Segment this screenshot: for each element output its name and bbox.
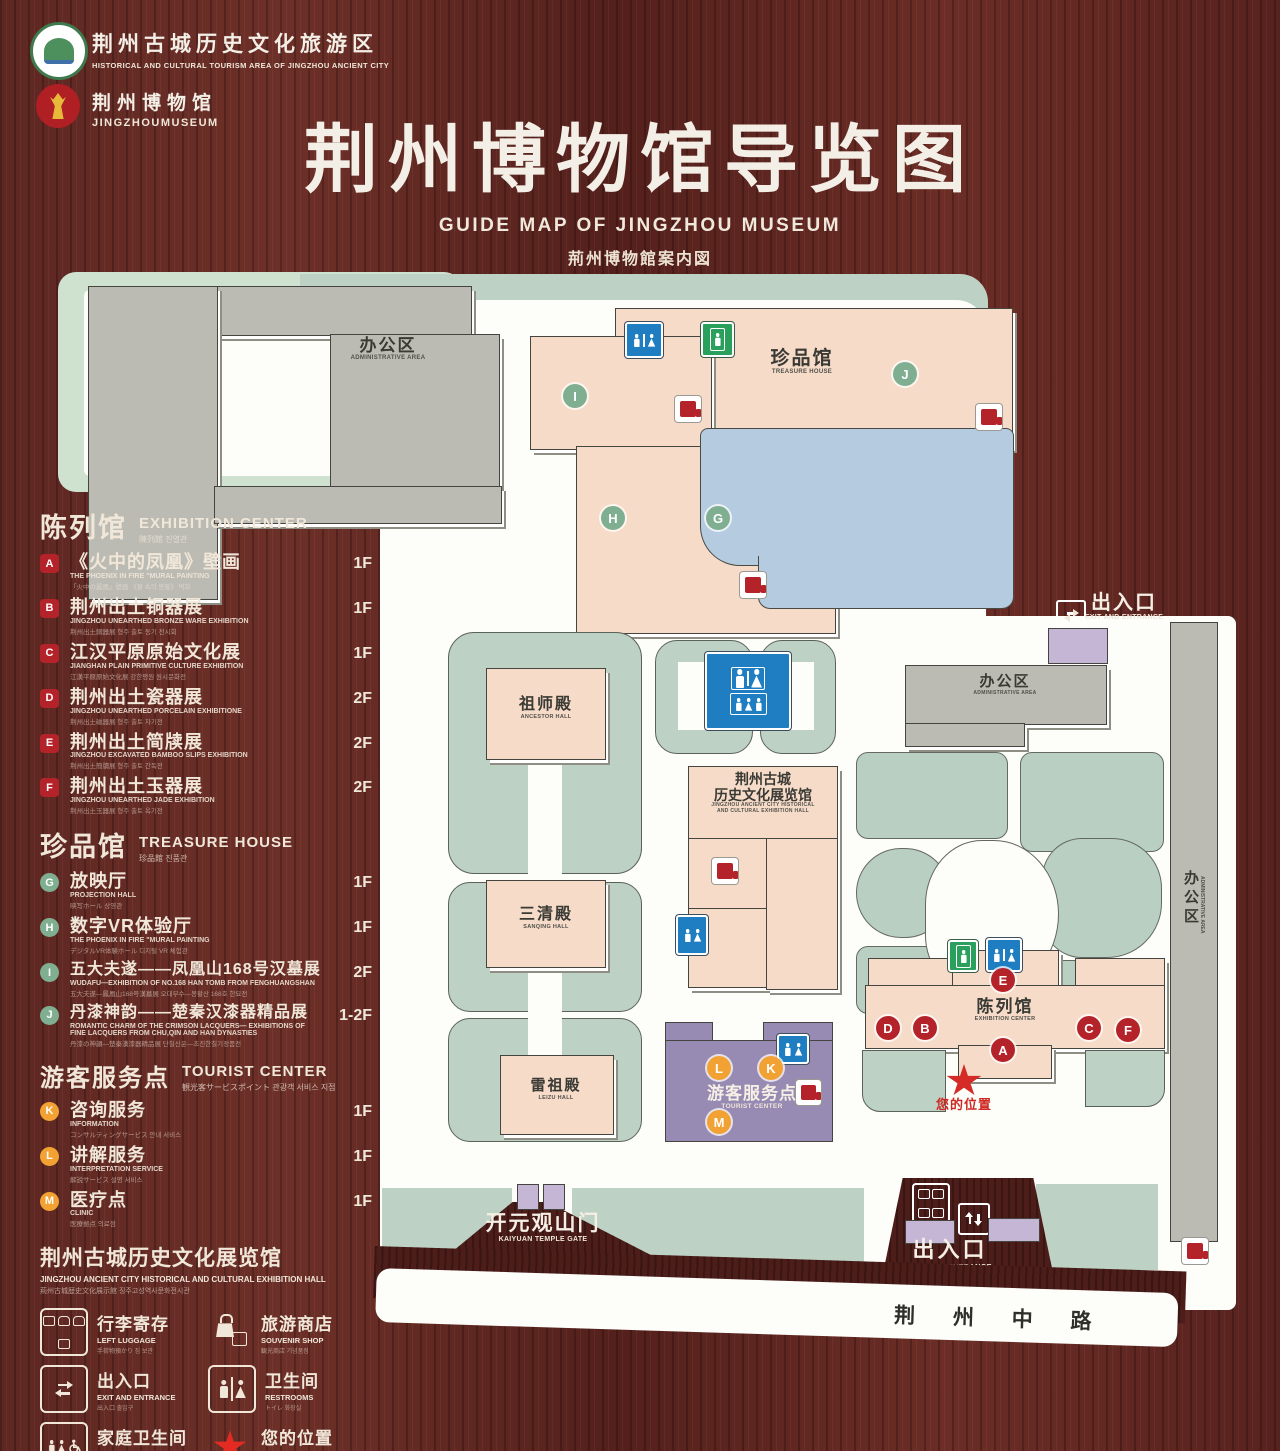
legend-restrooms: 卫生间RESTROOMSトイレ 화장실 [208, 1365, 372, 1413]
accessible-elevator-icon-tourist [796, 1080, 821, 1105]
admin-area-building-right-step[interactable] [905, 723, 1025, 747]
logo1-zh: 荆州古城历史文化旅游区 [92, 28, 389, 58]
badge-I: I [40, 963, 59, 982]
tourism-area-logo-text: 荆州古城历史文化旅游区 HISTORICAL AND CULTURAL TOUR… [92, 28, 389, 70]
title-en: GUIDE MAP OF JINGZHOU MUSEUM [304, 215, 976, 237]
map-marker-B[interactable]: B [913, 1016, 937, 1040]
left-luggage-icon [40, 1308, 88, 1356]
accessible-elevator-icon-jzhall [712, 858, 738, 884]
your-location-icon [208, 1424, 252, 1451]
badge-M: M [40, 1192, 59, 1211]
garden-patch [856, 752, 1008, 839]
pond-lower [758, 556, 1014, 609]
legend-exit-entrance: 出入口EXIT AND ENTRANCE出入口 출입구 [40, 1365, 208, 1413]
badge-D: D [40, 689, 59, 708]
legend-hall-note: 荆州古城历史文化展览馆 JINGZHOU ANCIENT CITY HISTOR… [40, 1242, 372, 1296]
badge-L: L [40, 1147, 59, 1166]
legend-section-tourist-header: 游客服务点 TOURIST CENTER 観光客サービスポイント 관광객 서비스… [40, 1058, 372, 1093]
map-marker-I[interactable]: I [563, 384, 587, 408]
leizu-hall-label: 雷祖殿 LEIZU HALL [530, 1078, 581, 1101]
tourism-area-logo [30, 22, 88, 80]
legend-item-A[interactable]: A 1F 《火中的凤凰》壁画 THE PHOENIX IN FIRE "MURA… [40, 553, 372, 591]
road-label: 荆 州 中 路 [894, 1299, 1108, 1336]
poster-title: 荆州博物馆导览图 GUIDE MAP OF JINGZHOU MUSEUM 荊州… [304, 100, 976, 294]
legend-item-K[interactable]: K 1F 咨询服务 INFORMATION コンサルティングサービス 안내 서비… [40, 1101, 372, 1139]
legend-item-H[interactable]: H 1F 数字VR体验厅 THE PHOENIX IN FIRE "MURAL … [40, 917, 372, 955]
legend-your-location: 您的位置YOUR LOCATIONあなたの位置 당신의 위치 [208, 1422, 372, 1451]
legend-item-C[interactable]: C 1F 江汉平原原始文化展 JIANGHAN PLAIN PRIMITIVE … [40, 643, 372, 681]
logo2-en: JINGZHOUMUSEUM [92, 117, 219, 129]
gate-building-south [988, 1218, 1040, 1242]
legend-item-E[interactable]: E 2F 荆州出土简牍展 JINGZHOU EXCAVATED BAMBOO S… [40, 733, 372, 771]
badge-B: B [40, 599, 59, 618]
jz-exhibition-hall-label: 荆州古城 历史文化展览馆 JINGZHOU ANCIENT CITY HISTO… [711, 772, 814, 815]
logo1-en: HISTORICAL AND CULTURAL TOURISM AREA OF … [92, 61, 389, 70]
exit-entrance-icon [40, 1365, 88, 1413]
museum-logo-text: 荆州博物馆 JINGZHOUMUSEUM [92, 88, 219, 129]
restroom-icon-jzhall [676, 915, 708, 955]
map-marker-K[interactable]: K [759, 1056, 783, 1080]
treasure-house-label: 珍品馆 TREASURE HOUSE [770, 348, 833, 376]
accessible-elevator-icon-treasure1 [675, 396, 701, 422]
wheelchair-glyph [67, 1439, 82, 1451]
floor-label: 1F [353, 555, 372, 573]
legend-item-G[interactable]: G 1F 放映厅 PROJECTION HALL 映写ホール 상영관 [40, 872, 372, 910]
map-marker-H[interactable]: H [601, 506, 625, 530]
legend-souvenir-shop: 旅游商店SOUVENIR SHOP観光商店 기념품점 [208, 1308, 372, 1356]
section-subtitle: 陳列館 진열관 [139, 534, 308, 545]
map-marker-E[interactable]: E [991, 968, 1015, 992]
exhibition-court-right [1085, 1050, 1165, 1107]
elevator-icon-exhibition [948, 940, 978, 972]
ancestor-hall-label: 祖师殿 ANCESTOR HALL [519, 696, 573, 720]
map-marker-G[interactable]: G [706, 506, 730, 530]
badge-K: K [40, 1102, 59, 1121]
legend-family-restrooms: 家庭卫生间FAMILY RESTROOMS家庭用トイレ 가족용 화장실 [40, 1422, 208, 1451]
badge-G: G [40, 873, 59, 892]
admin-area-label-topleft: 办公区 ADMINISTRATIVE AREA [351, 336, 426, 362]
badge-C: C [40, 644, 59, 663]
kaiyuan-gate-pillar [517, 1184, 539, 1210]
badge-A: A [40, 554, 59, 573]
admin-strip-label-en: ADMINISTRATIVE AREA [1199, 876, 1205, 934]
family-restrooms-icon [40, 1422, 88, 1451]
logo2-zh: 荆州博物馆 [92, 88, 219, 115]
souvenir-shop-icon [208, 1310, 252, 1354]
restroom-icon-central [705, 652, 791, 730]
map-marker-C[interactable]: C [1077, 1016, 1101, 1040]
exhibition-center-label: 陈列馆 EXHIBITION CENTER [975, 997, 1036, 1022]
badge-H: H [40, 918, 59, 937]
kaiyuan-gate-label: 开元观山门 KAIYUAN TEMPLE GATE [486, 1212, 601, 1243]
badge-J: J [40, 1006, 59, 1025]
pond [700, 428, 1014, 566]
map-marker-M[interactable]: M [707, 1110, 731, 1134]
title-zh: 荆州博物馆导览图 [304, 100, 976, 207]
bottom-green-strip [1036, 1184, 1158, 1270]
jz-exhibition-hall-right[interactable] [766, 838, 838, 990]
exhibition-court-left [862, 1050, 946, 1112]
map-marker-A[interactable]: A [991, 1038, 1015, 1062]
map-marker-D[interactable]: D [876, 1016, 900, 1040]
treasure-house-building-left[interactable] [530, 336, 712, 450]
legend-icon-grid: 行李寄存LEFT LUGGAGE手荷物預かり 짐 보관 旅游商店SOUVENIR… [40, 1308, 372, 1451]
restroom-icon-tourist [777, 1034, 809, 1064]
legend-item-B[interactable]: B 1F 荆州出土铜器展 JINGZHOU UNEARTHED BRONZE W… [40, 598, 372, 636]
museum-guide-map-poster: 荆州古城历史文化旅游区 HISTORICAL AND CULTURAL TOUR… [0, 0, 1280, 1451]
restrooms-icon [208, 1365, 256, 1413]
updown-arrows-icon-map [958, 1203, 990, 1235]
admin-strip-building[interactable] [1170, 622, 1218, 1242]
restroom-icon-treasure [625, 322, 663, 358]
left-luggage-icon-map [912, 1183, 950, 1223]
exit-ne-label: 出入口 EXIT AND ENTRANCE [1085, 592, 1163, 622]
garden-island-right [1042, 838, 1162, 958]
legend-item-I[interactable]: I 2F 五大夫遂——凤凰山168号汉墓展 WUDAFU—EXHIBITION … [40, 962, 372, 998]
admin-strip-label: 办公区 [1180, 870, 1201, 927]
accessible-elevator-icon-southeast [1182, 1238, 1208, 1264]
map-marker-F[interactable]: F [1116, 1018, 1140, 1042]
restroom-icon-exhibition [986, 938, 1022, 972]
legend-section-exhibition-header: 陈列馆 EXHIBITION CENTER 陳列館 진열관 [40, 506, 372, 545]
legend-item-L[interactable]: L 1F 讲解服务 INTERPRETATION SERVICE 解説サービス … [40, 1146, 372, 1184]
jingzhou-museum-logo [36, 84, 80, 128]
map-marker-L[interactable]: L [707, 1056, 731, 1080]
section-title-en: EXHIBITION CENTER [139, 515, 308, 532]
accessible-elevator-icon-treasure3 [976, 404, 1002, 430]
your-location-label: 您的位置 [936, 1098, 992, 1113]
legend-item-J[interactable]: J 1-2F 丹漆神韵——楚秦汉漆器精品展 ROMANTIC CHARM OF … [40, 1005, 372, 1048]
legend-item-F[interactable]: F 2F 荆州出土玉器展 JINGZHOU UNEARTHED JADE EXH… [40, 777, 372, 815]
elevator-icon-treasure [701, 322, 734, 357]
legend-left-luggage: 行李寄存LEFT LUGGAGE手荷物預かり 짐 보관 [40, 1308, 208, 1356]
admin-area-right-label: 办公区 ADMINISTRATIVE AREA [973, 674, 1036, 696]
title-ja: 荊州博物館案内図 [304, 245, 976, 269]
sanqing-hall-label: 三清殿 SANQING HALL [519, 906, 573, 930]
legend-item-M[interactable]: M 1F 医疗点 CLINIC 医療拠点 의료점 [40, 1191, 372, 1229]
legend-section-treasure-header: 珍品馆 TREASURE HOUSE 珍品館 진품관 [40, 825, 372, 864]
map-marker-J[interactable]: J [893, 362, 917, 386]
tourist-center-label: 游客服务点 TOURIST CENTER [707, 1084, 797, 1110]
legend-item-D[interactable]: D 2F 荆州出土瓷器展 JINGZHOU UNEARTHED PORCELAI… [40, 688, 372, 726]
badge-F: F [40, 778, 59, 797]
accessible-elevator-icon-treasure2 [740, 572, 766, 598]
garden-patch [1020, 752, 1164, 852]
section-title-zh: 陈列馆 [40, 506, 127, 545]
gate-building-ne [1048, 628, 1108, 664]
kaiyuan-gate-pillar [543, 1184, 565, 1210]
legend-panel: 陈列馆 EXHIBITION CENTER 陳列館 진열관 A 1F 《火中的凤… [40, 496, 372, 1451]
badge-E: E [40, 734, 59, 753]
